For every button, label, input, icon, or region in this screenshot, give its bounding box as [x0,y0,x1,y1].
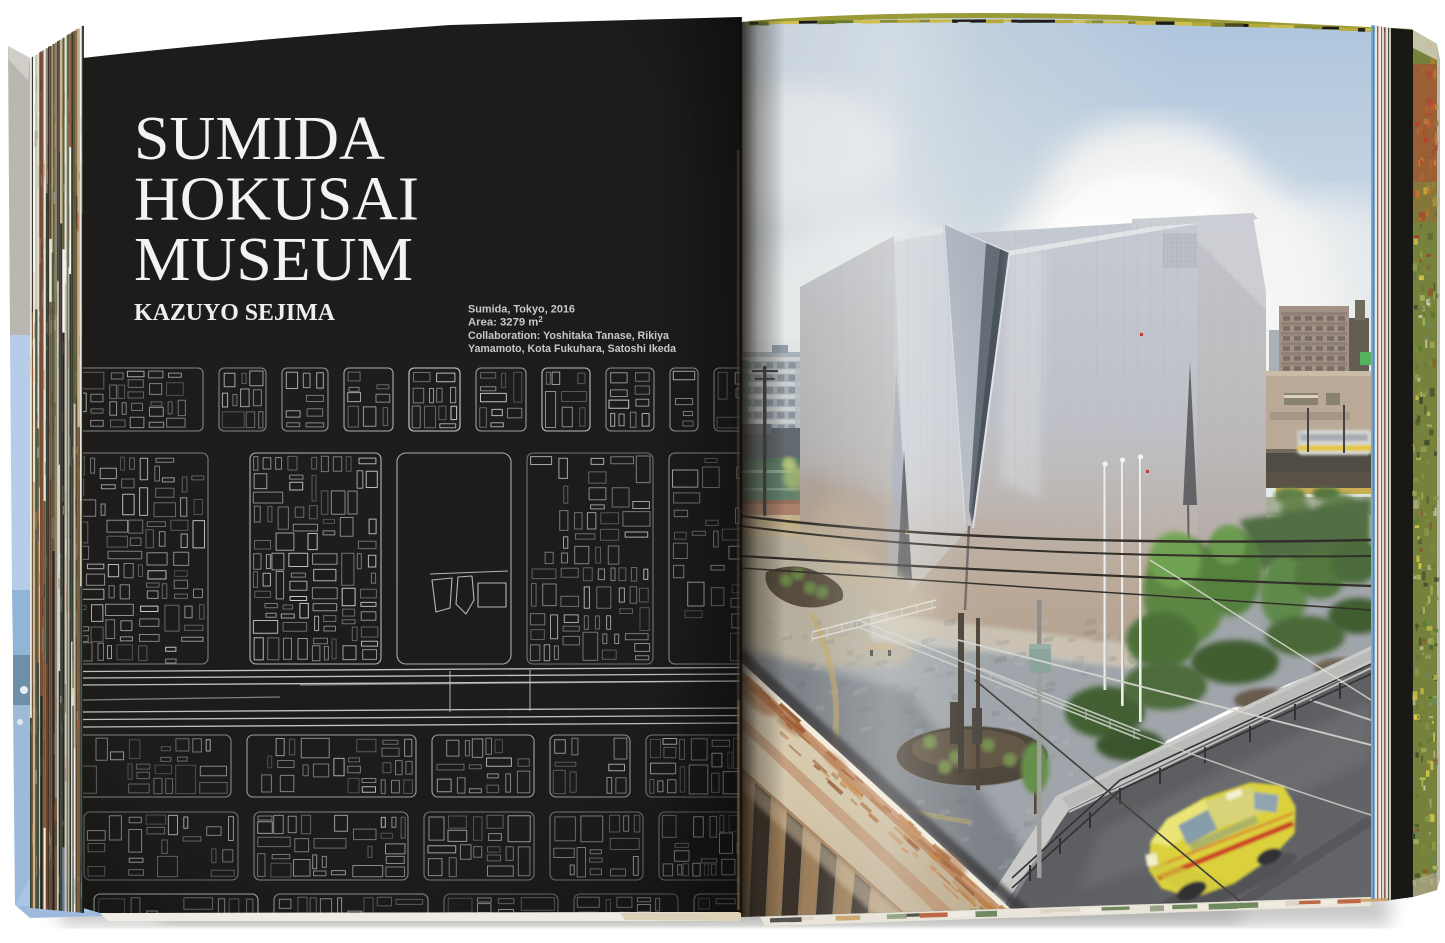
svg-text:Yamamoto, Kota Fukuhara, Satos: Yamamoto, Kota Fukuhara, Satoshi Ikeda [468,343,677,355]
svg-text:Collaboration: Yoshitaka Tanas: Collaboration: Yoshitaka Tanase, Rikiya [468,330,670,342]
svg-text:Sumida, Tokyo, 2016: Sumida, Tokyo, 2016 [468,304,575,316]
svg-text:MUSEUM: MUSEUM [134,226,413,294]
svg-text:HOKUSAI: HOKUSAI [134,166,419,234]
svg-text:KAZUYO SEJIMA: KAZUYO SEJIMA [134,300,336,326]
svg-text:SUMIDA: SUMIDA [134,105,385,173]
svg-text:Area: 3279 m2: Area: 3279 m2 [468,315,543,329]
